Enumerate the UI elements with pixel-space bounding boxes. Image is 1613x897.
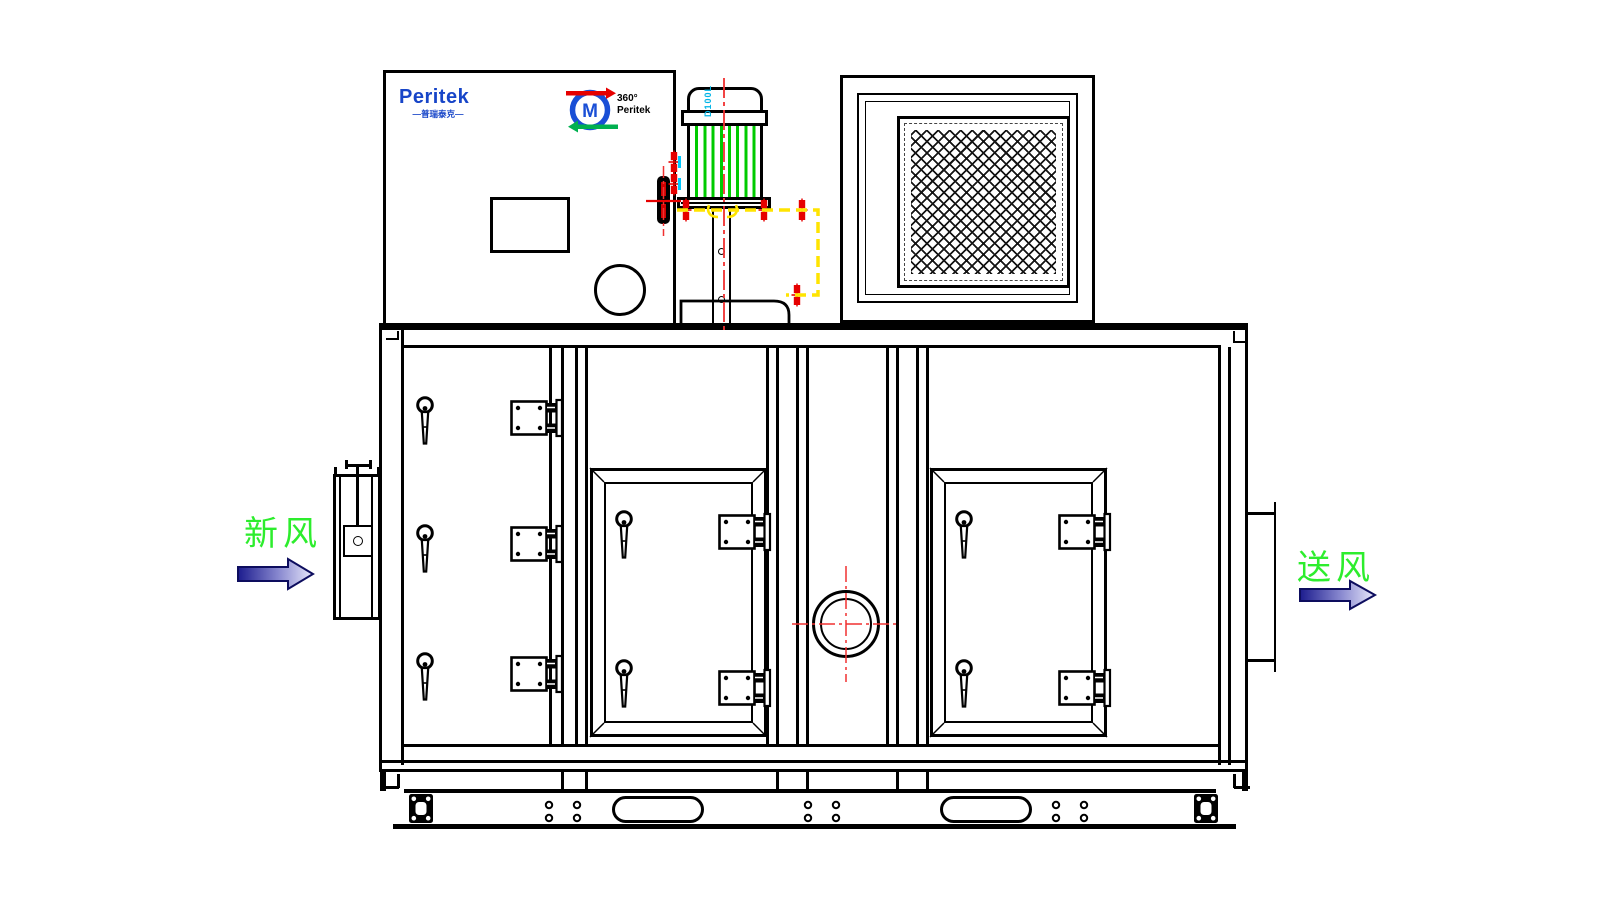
control-box-cutout-rect — [490, 197, 570, 253]
control-box-cutout-circle — [594, 264, 646, 316]
sight-glass-inner-ring — [820, 598, 872, 650]
pedestal-bolt-hole-1 — [718, 248, 725, 255]
cabinet-outer-shell — [379, 323, 1248, 772]
motor-body-finned — [687, 123, 763, 200]
filter-mesh — [911, 130, 1056, 274]
damper-rod — [356, 466, 359, 526]
outlet-flange-tick-top — [1274, 502, 1277, 513]
panel-joint-line — [896, 348, 899, 746]
mounting-outline-dashed — [677, 210, 818, 295]
fresh-air-label: 新风 — [244, 506, 322, 555]
supply-air-label: 送风 — [1297, 540, 1375, 589]
cyan-shim-mark — [678, 178, 681, 190]
fresh-air-arrow-icon — [238, 559, 313, 589]
joint-stub — [806, 770, 809, 789]
cabinet-inner-right-wall-1 — [1218, 347, 1221, 765]
cabinet-inner-top-line — [403, 345, 1221, 348]
middle-door-inner-frame — [604, 482, 753, 723]
skid-forklift-slot-right — [940, 796, 1032, 823]
panel-joint-line — [575, 348, 578, 746]
panel-joint-line — [585, 348, 588, 746]
cabinet-inner-left-wall — [401, 330, 404, 765]
outlet-flange-box — [1248, 512, 1276, 662]
skid-forklift-slot-left — [612, 796, 704, 823]
cabinet-bottom-line2 — [379, 760, 1248, 763]
cyan-shim-mark — [678, 156, 681, 168]
emblem-caption-line2: Peritek — [617, 105, 650, 116]
anchor-bolt — [792, 284, 803, 307]
brand-logo-subtitle-text: 普瑞泰克 — [421, 109, 455, 119]
joint-stub — [585, 770, 588, 789]
right-door-inner-frame — [944, 482, 1093, 723]
motor-pedestal-column — [712, 209, 731, 328]
cabinet-roof-band — [379, 323, 1248, 330]
panel-joint-line — [796, 348, 799, 746]
inlet-flange-tick-left — [334, 467, 337, 475]
brand-logo-subtitle: —普瑞泰克— — [396, 108, 480, 120]
panel-joint-line — [806, 348, 809, 746]
anchor-bolt — [797, 199, 808, 222]
panel-joint-line — [926, 348, 929, 746]
outlet-flange-tick-bottom — [1274, 661, 1277, 672]
pedestal-bolt-hole-2 — [718, 296, 725, 303]
damper-t-tick-left — [345, 460, 348, 469]
cabinet-inner-right-wall-2 — [1228, 347, 1231, 765]
skid-bottom-line — [393, 824, 1236, 829]
skid-anchor-bracket — [1194, 794, 1218, 823]
panel-joint-line — [916, 348, 919, 746]
roof-notch-left — [386, 331, 399, 340]
joint-stub — [776, 770, 779, 789]
panel-joint-line — [561, 348, 564, 746]
brand-logo-text: Peritek — [399, 86, 469, 109]
skid-anchor-bracket — [409, 794, 433, 823]
motor-base-rail-line — [681, 202, 767, 204]
joint-stub — [561, 770, 564, 789]
panel-joint-line — [549, 348, 552, 746]
inlet-flange-tick-right — [377, 467, 380, 475]
joint-stub — [926, 770, 929, 789]
panel-joint-line — [776, 348, 779, 746]
joint-stub — [896, 770, 899, 789]
roof-notch-right — [1233, 331, 1246, 343]
panel-joint-line — [886, 348, 889, 746]
cabinet-leg-left — [380, 770, 386, 791]
skid-top-line — [404, 789, 1216, 793]
cabinet-leg-right — [1242, 770, 1248, 791]
emblem-caption-line1: 360° — [617, 93, 638, 104]
inlet-flange-inner-line-1 — [339, 477, 341, 617]
svg-text:M: M — [582, 101, 598, 122]
damper-actuator-hole — [353, 536, 363, 546]
motor-model-label: D100L — [703, 85, 713, 117]
damper-t-tick-right — [369, 460, 372, 469]
rotor-emblem-icon: M — [564, 82, 622, 138]
drawing-canvas: Peritek —普瑞泰克— M 360° Peritek D100L — [0, 0, 1613, 897]
cabinet-inner-bottom-line — [403, 744, 1221, 747]
